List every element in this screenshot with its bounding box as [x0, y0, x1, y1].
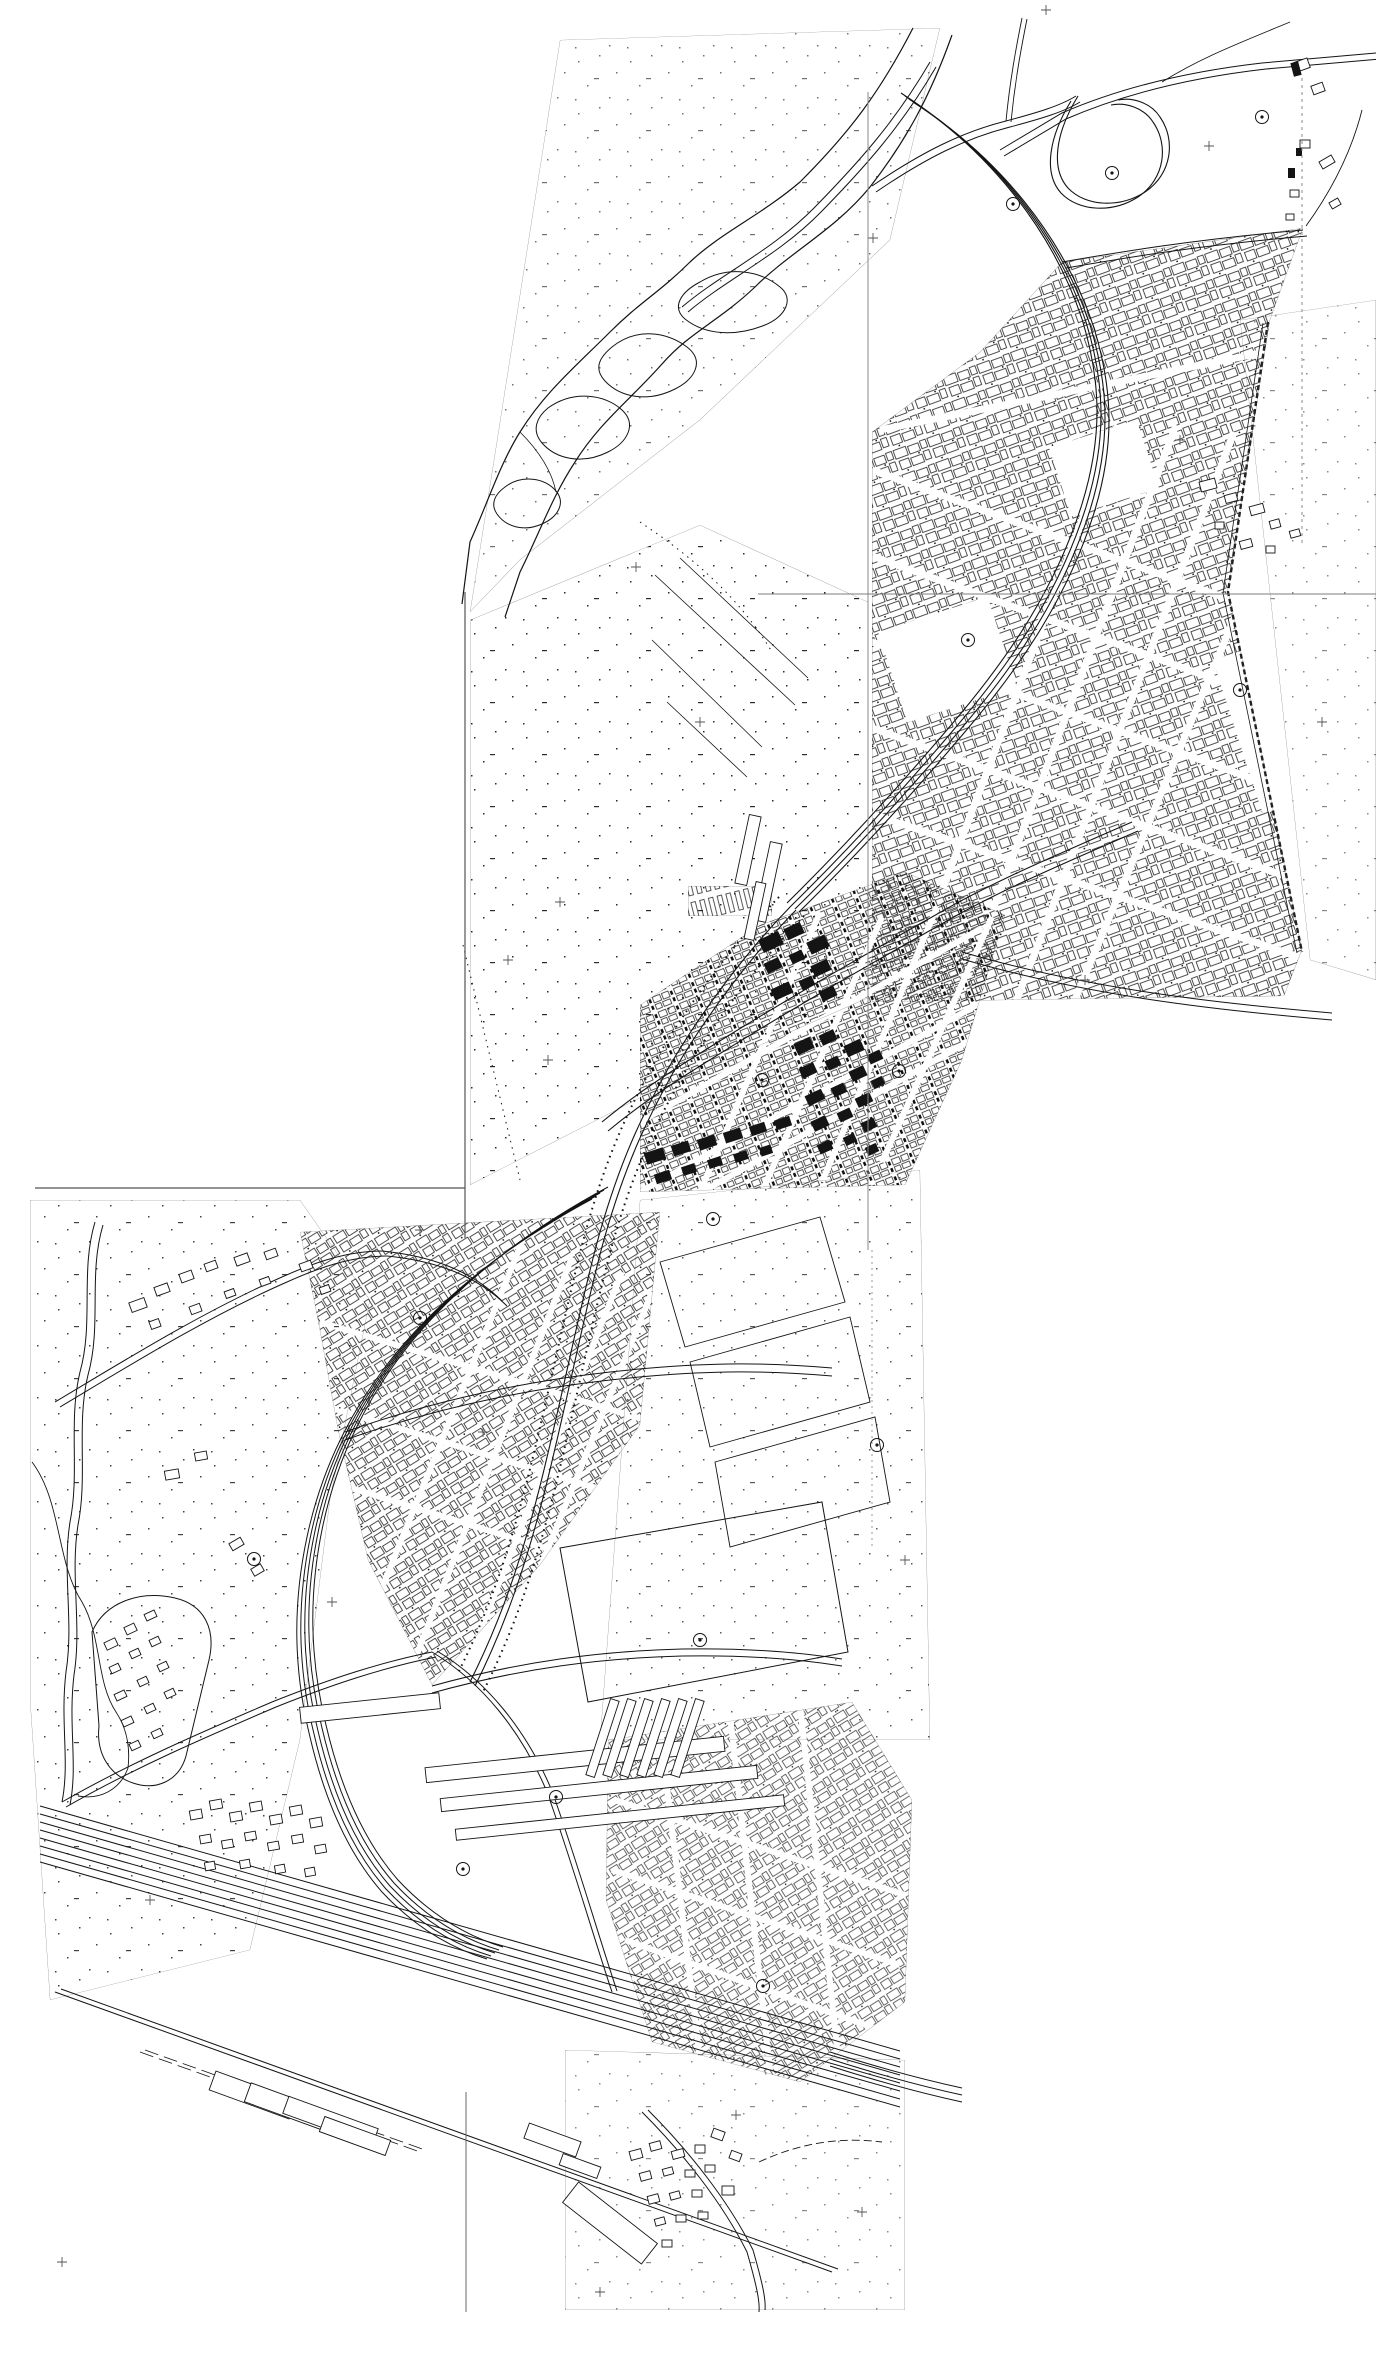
- feature-north-road-up: [1006, 18, 1027, 122]
- building-outline: [209, 1799, 222, 1810]
- circle-symbol: [1007, 198, 1020, 211]
- survey-cross: [57, 2257, 67, 2267]
- building-outline: [304, 1867, 315, 1877]
- highlighted-block: [1296, 148, 1302, 156]
- building-outline: [705, 2165, 715, 2172]
- building-outline: [676, 2215, 686, 2222]
- building-outline: [289, 1805, 302, 1816]
- building-outline: [199, 1834, 211, 1844]
- building-outline: [244, 1831, 256, 1841]
- survey-cross: [327, 1597, 337, 1607]
- building-outline: [1329, 198, 1341, 209]
- building-outline: [229, 1811, 242, 1822]
- building-outline: [1239, 539, 1253, 550]
- building-outline: [274, 1864, 285, 1874]
- building-outline: [1290, 190, 1299, 197]
- feature-oxbow-loop: [1050, 96, 1169, 208]
- scanned-map-page: [0, 0, 1376, 2356]
- building-outline: [662, 2240, 672, 2247]
- circle-symbol: [457, 1863, 470, 1876]
- parcel-texture-regions-layer: [30, 28, 1376, 2310]
- building-outline: [164, 1469, 179, 1480]
- region-south-village-meadow: [565, 2050, 905, 2310]
- building-outline: [300, 1693, 441, 1724]
- building-outline: [722, 2186, 734, 2195]
- building-outline: [194, 1451, 207, 1461]
- building-outline: [249, 1801, 262, 1812]
- building-outline: [314, 1844, 326, 1854]
- survey-cross: [1041, 5, 1051, 15]
- building-outline: [269, 1814, 282, 1825]
- region-south-right-meadows: [600, 1170, 930, 1740]
- building-outline: [698, 2212, 708, 2219]
- circle-symbol: [1106, 167, 1119, 180]
- highlighted-block: [1288, 168, 1295, 178]
- building-outline: [1311, 82, 1325, 95]
- building-outline: [221, 1839, 233, 1849]
- building-outline: [1319, 155, 1335, 169]
- building-outline: [291, 1834, 303, 1844]
- building-outline: [204, 1861, 215, 1871]
- building-outline: [692, 2190, 702, 2197]
- building-outline: [695, 2145, 705, 2153]
- building-outline: [685, 2170, 695, 2177]
- building-outline: [189, 1809, 202, 1820]
- building-outline: [1215, 522, 1224, 529]
- feature-corner-road-1: [1162, 22, 1290, 82]
- circle-symbol: [1256, 111, 1269, 124]
- building-outline: [1266, 546, 1275, 553]
- building-outline: [239, 1859, 250, 1869]
- survey-cross: [1204, 141, 1214, 151]
- feature-bridge-road: [1000, 53, 1376, 156]
- map-canvas: [0, 0, 1376, 2356]
- building-outline: [267, 1841, 279, 1851]
- building-outline: [1286, 214, 1294, 220]
- building-outline: [309, 1817, 322, 1828]
